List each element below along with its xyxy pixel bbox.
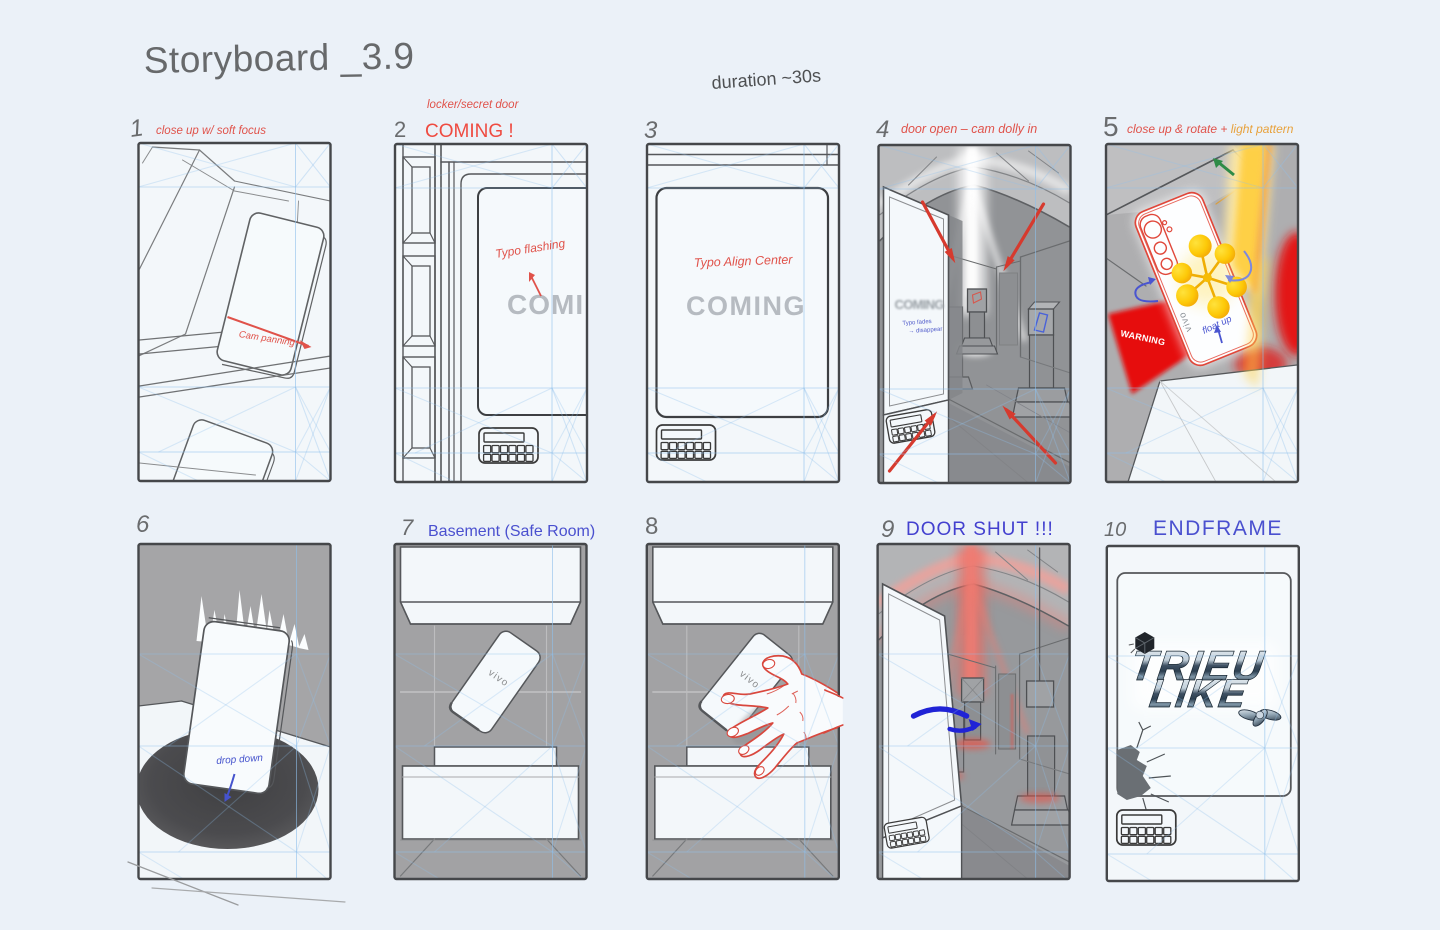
svg-text:COMIN: COMIN (507, 289, 605, 320)
svg-text:4: 4 (876, 116, 889, 143)
svg-text:2: 2 (394, 117, 406, 142)
svg-text:5: 5 (1103, 111, 1119, 142)
svg-text:10: 10 (1104, 519, 1126, 541)
svg-text:duration ~30s: duration ~30s (711, 65, 822, 93)
svg-text:close up & rotate + light patt: close up & rotate + light pattern (1127, 122, 1294, 136)
svg-text:COMING: COMING (895, 297, 945, 312)
svg-text:COMING: COMING (686, 291, 806, 321)
svg-text:close up w/ soft focus: close up w/ soft focus (156, 125, 266, 137)
svg-text:1: 1 (128, 114, 145, 143)
svg-text:9: 9 (881, 516, 894, 543)
svg-text:8: 8 (645, 513, 658, 540)
svg-text:COMING !: COMING ! (425, 121, 514, 142)
svg-text:Basement (Safe Room): Basement (Safe Room) (428, 523, 595, 540)
svg-text:DOOR SHUT !!!: DOOR SHUT !!! (906, 519, 1054, 540)
svg-text:Storyboard _3.9: Storyboard _3.9 (143, 35, 414, 81)
svg-text:ENDFRAME: ENDFRAME (1153, 517, 1283, 540)
svg-text:3: 3 (644, 117, 658, 144)
svg-text:door open – cam dolly in: door open – cam dolly in (901, 122, 1037, 136)
svg-text:locker/secret door: locker/secret door (427, 99, 520, 111)
svg-text:6: 6 (136, 511, 150, 538)
svg-text:7: 7 (401, 515, 414, 540)
